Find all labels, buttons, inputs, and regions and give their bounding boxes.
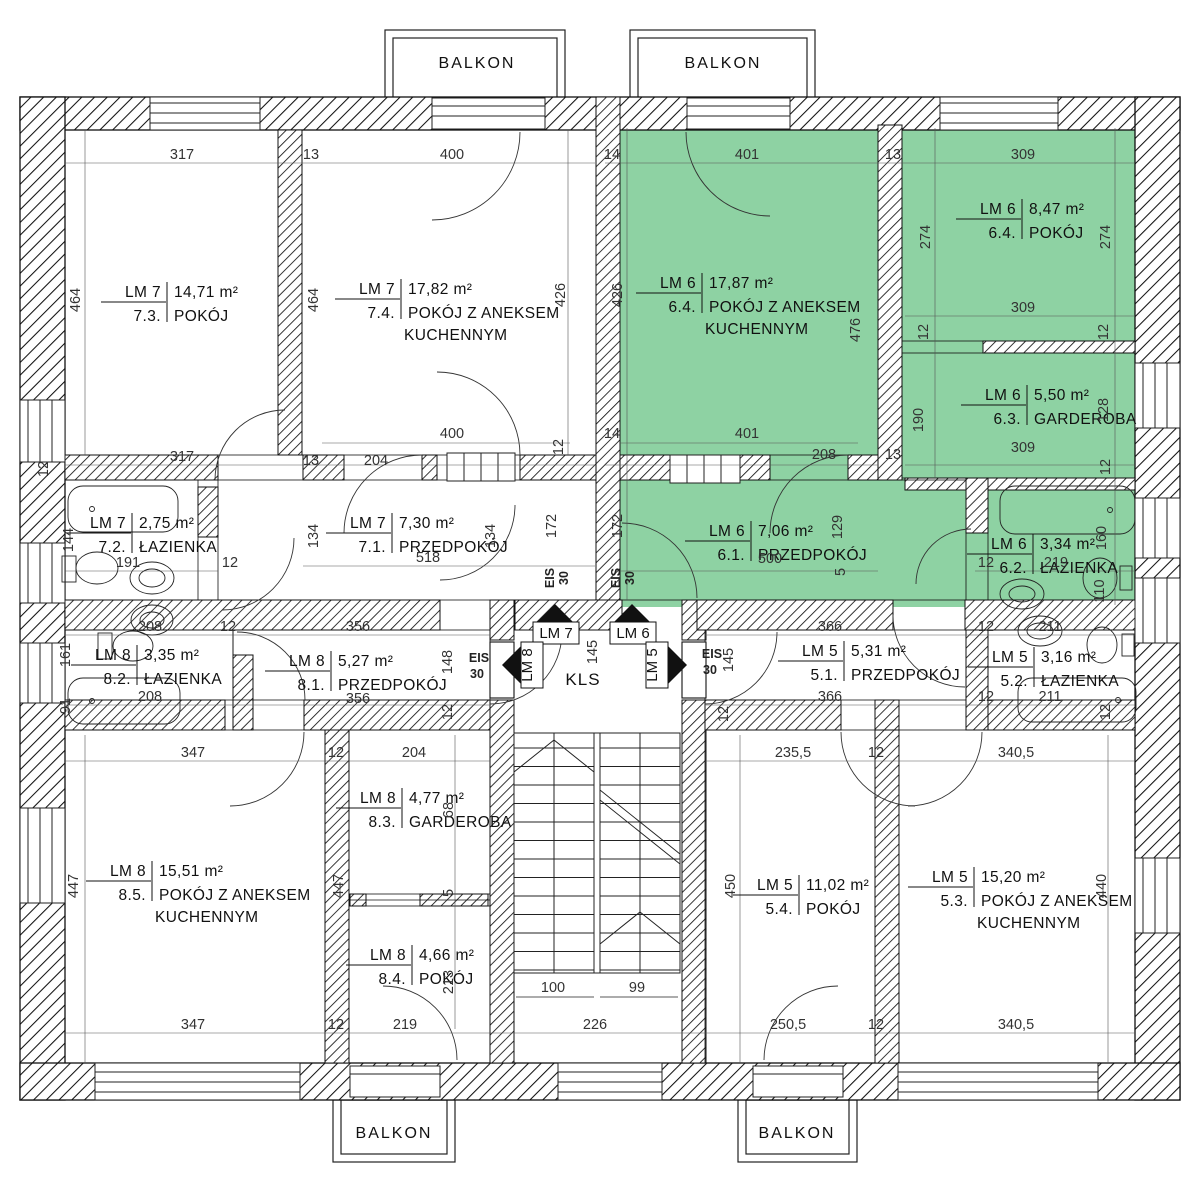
dimension-label: 12 (978, 555, 994, 571)
marker-lm5: LM 5 (644, 642, 687, 688)
room-name: POKÓJ Z ANEKSEM (159, 887, 311, 904)
dimension-label: 12 (978, 619, 994, 635)
room-area: 7,06 m² (758, 523, 813, 540)
room-name-line2: KUCHENNYM (977, 915, 1081, 932)
door-room-53 (908, 732, 982, 806)
dimension-label: 12 (551, 439, 567, 455)
room-number: 8.4. (379, 971, 406, 988)
room-number: 6.2. (1000, 560, 1027, 577)
dimension-label: 440 (1094, 874, 1110, 898)
room-label-83: LM 84,77 m²8.3.GARDEROBA (336, 788, 512, 831)
room-label-72: LM 72,75 m²7.2.ŁAZIENKA (66, 513, 217, 556)
dimension-label: 401 (735, 147, 759, 163)
room-area: 7,30 m² (399, 515, 454, 532)
dimension-label: 12 (220, 619, 236, 635)
dimension-label: 12 (868, 1017, 884, 1033)
room-area: 2,75 m² (139, 515, 194, 532)
room-label-73: LM 714,71 m²7.3.POKÓJ (101, 282, 238, 325)
dimension-label: 14 (604, 147, 620, 163)
door-room-73 (215, 410, 285, 480)
room-unit: LM 6 (985, 387, 1021, 404)
dimension-label: 476 (848, 318, 864, 342)
room-name-line2: KUCHENNYM (155, 909, 259, 926)
dimension-label: 447 (331, 874, 347, 898)
dimension-label: 340,5 (998, 745, 1034, 761)
room-number: 7.4. (368, 305, 395, 322)
room-number: 6.4. (669, 299, 696, 316)
svg-text:LM 8: LM 8 (519, 648, 536, 681)
room-unit: LM 6 (660, 275, 696, 292)
room-number: 6.3. (994, 411, 1021, 428)
apartment-lm6-highlight (602, 126, 1135, 607)
room-label-85: LM 815,51 m²8.5.POKÓJ Z ANEKSEMKUCHENNYM (86, 861, 311, 926)
dimension-label: 213 (441, 970, 457, 994)
dimension-label: 464 (306, 288, 322, 312)
room-area: 17,82 m² (408, 281, 472, 298)
dimension-label: 204 (364, 453, 388, 469)
room-area: 14,71 m² (174, 284, 238, 301)
room-label-51: LM 55,31 m²5.1.PRZEDPOKÓJ (778, 641, 960, 684)
room-number: 7.1. (359, 539, 386, 556)
dimension-label: 12 (440, 704, 456, 720)
dimension-label: 145 (585, 640, 601, 664)
svg-text:30: 30 (703, 663, 717, 677)
room-number: 8.2. (104, 671, 131, 688)
room-name-line2: KUCHENNYM (404, 327, 508, 344)
dimension-label: 12 (36, 461, 52, 477)
room-unit: LM 7 (125, 284, 161, 301)
dimension-label: 366 (818, 619, 842, 635)
svg-text:EIS: EIS (543, 568, 557, 588)
dimension-label: 518 (416, 550, 440, 566)
dimension-label: 13 (303, 453, 319, 469)
toilet-icon (62, 552, 118, 584)
dimension-label: 12 (978, 689, 994, 705)
room-name: GARDEROBA (1034, 411, 1137, 428)
svg-text:EIS: EIS (702, 647, 722, 661)
door-balcony-74 (432, 132, 520, 220)
dimension-label: 13 (885, 147, 901, 163)
dimension-label: 208 (812, 447, 836, 463)
room-unit: LM 8 (289, 653, 325, 670)
dimension-label: 12 (916, 324, 932, 340)
balcony-label: BALKON (439, 55, 516, 72)
dimension-label: 5 (833, 568, 849, 576)
room-unit: LM 6 (991, 536, 1027, 553)
dimension-label: 128 (1096, 398, 1112, 422)
room-name: PRZEDPOKÓJ (851, 667, 960, 684)
dimension-label: 14 (604, 426, 620, 442)
room-area: 15,20 m² (981, 869, 1045, 886)
dimension-label: 145 (721, 648, 737, 672)
room-unit: LM 6 (709, 523, 745, 540)
dimension-label: 447 (66, 874, 82, 898)
room-area: 15,51 m² (159, 863, 223, 880)
dimension-label: 211 (1038, 619, 1061, 635)
room-number: 5.4. (766, 901, 793, 918)
fire-door-label: EIS 30 (543, 568, 571, 588)
room-label-82: LM 83,35 m²8.2.ŁAZIENKA (71, 645, 222, 688)
room-area: 8,47 m² (1029, 201, 1084, 218)
svg-text:EIS: EIS (609, 568, 623, 588)
dimension-label: 191 (116, 555, 140, 571)
room-area: 5,50 m² (1034, 387, 1089, 404)
dimension-label: 317 (170, 449, 194, 465)
svg-text:LM 7: LM 7 (539, 625, 572, 642)
dimension-label: 204 (402, 745, 426, 761)
dimension-label: 500 (758, 551, 782, 567)
room-number: 6.4. (989, 225, 1016, 242)
dimension-label: 208 (138, 619, 162, 635)
room-unit: LM 7 (90, 515, 126, 532)
staircase-label: KLS (565, 670, 600, 689)
room-area: 3,35 m² (144, 647, 199, 664)
room-number: 5.3. (941, 893, 968, 910)
fire-door-label: EIS 30 (469, 651, 489, 681)
floor-plan-page: LM 7 LM 6 LM 8 LM 5 BALKON BALKON BALKON… (0, 0, 1200, 1200)
dimension-label: 12 (716, 706, 732, 722)
room-label-81: LM 85,27 m²8.1.PRZEDPOKÓJ (265, 651, 447, 694)
room-area: 5,31 m² (851, 643, 906, 660)
dimension-label: 464 (68, 288, 84, 312)
dimension-label: 172 (610, 514, 626, 538)
dimension-label: 356 (346, 691, 370, 707)
room-name: POKÓJ Z ANEKSEM (709, 299, 861, 316)
dimension-label: 401 (735, 426, 759, 442)
room-name: POKÓJ (806, 901, 861, 918)
dimension-label: 347 (181, 1017, 205, 1033)
room-name: GARDEROBA (409, 814, 512, 831)
door-room-85 (230, 732, 304, 806)
dimension-label: 13 (303, 147, 319, 163)
room-label-74: LM 717,82 m²7.4.POKÓJ Z ANEKSEMKUCHENNYM (335, 279, 560, 344)
room-unit: LM 5 (802, 643, 838, 660)
dimension-label: 400 (440, 147, 464, 163)
dimension-label: 274 (1098, 225, 1114, 249)
room-unit: LM 8 (360, 790, 396, 807)
dimension-label: 134 (483, 524, 499, 548)
balcony-label: BALKON (685, 55, 762, 72)
room-area: 3,16 m² (1041, 649, 1096, 666)
room-unit: LM 8 (110, 863, 146, 880)
dimension-label: 12 (222, 555, 238, 571)
svg-text:30: 30 (470, 667, 484, 681)
room-area: 17,87 m² (709, 275, 773, 292)
dimension-label: 309 (1011, 300, 1035, 316)
dimension-label: 274 (918, 225, 934, 249)
svg-text:LM 5: LM 5 (644, 648, 661, 681)
room-number: 8.3. (369, 814, 396, 831)
room-number: 7.2. (99, 539, 126, 556)
dimension-label: 68 (441, 802, 457, 818)
dimension-label: 12 (1098, 459, 1114, 475)
balcony-label: BALKON (759, 1125, 836, 1142)
dimension-label: 366 (818, 689, 842, 705)
dimension-label: 148 (440, 650, 456, 674)
dimension-label: 134 (306, 524, 322, 548)
room-area: 5,27 m² (338, 653, 393, 670)
dimension-label: 190 (911, 408, 927, 432)
room-number: 5.2. (1001, 673, 1028, 690)
dimension-label: 12 (1096, 324, 1112, 340)
staircase (514, 733, 680, 997)
dimension-label: 12 (868, 745, 884, 761)
floor-plan-drawing: LM 7 LM 6 LM 8 LM 5 BALKON BALKON BALKON… (0, 0, 1200, 1200)
dimension-label: 12 (328, 745, 344, 761)
room-name: ŁAZIENKA (144, 671, 222, 688)
room-unit: LM 6 (980, 201, 1016, 218)
dimension-label: 426 (553, 283, 569, 307)
room-number: 7.3. (134, 308, 161, 325)
room-area: 3,34 m² (1040, 536, 1095, 553)
room-label-52: LM 53,16 m²5.2.ŁAZIENKA (968, 647, 1119, 690)
dimension-label: 450 (723, 874, 739, 898)
dimension-label: 13 (885, 447, 901, 463)
dimension-label: 250,5 (770, 1017, 806, 1033)
room-label-54: LM 511,02 m²5.4.POKÓJ (733, 875, 869, 918)
room-unit: LM 5 (932, 869, 968, 886)
svg-text:LM 6: LM 6 (616, 625, 649, 642)
dimension-label: 100 (541, 980, 565, 996)
room-name: POKÓJ (174, 308, 229, 325)
room-unit: LM 5 (992, 649, 1028, 666)
room-name: POKÓJ (1029, 225, 1084, 242)
room-number: 8.1. (298, 677, 325, 694)
svg-text:30: 30 (557, 571, 571, 585)
dimension-label: 99 (629, 980, 645, 996)
dimension-label: 208 (138, 689, 162, 705)
svg-text:30: 30 (623, 571, 637, 585)
dimension-label: 110 (1092, 579, 1108, 602)
dimension-label: 309 (1011, 147, 1035, 163)
room-number: 6.1. (718, 547, 745, 564)
dimension-label: 211 (1038, 689, 1061, 705)
dimension-label: 426 (610, 283, 626, 307)
dimension-label: 400 (440, 426, 464, 442)
dimension-label: 317 (170, 147, 194, 163)
dimension-label: 160 (1094, 526, 1110, 550)
dimension-label: 235,5 (775, 745, 811, 761)
door-room-74 (437, 372, 520, 455)
dimension-label: 356 (346, 619, 370, 635)
svg-text:EIS: EIS (469, 651, 489, 665)
dimension-label: 12 (328, 1017, 344, 1033)
room-unit: LM 8 (95, 647, 131, 664)
room-name-line2: KUCHENNYM (705, 321, 809, 338)
dimension-label: 340,5 (998, 1017, 1034, 1033)
room-number: 8.5. (119, 887, 146, 904)
kitchen-annex-left (447, 453, 515, 481)
kitchen-annex-right (670, 455, 740, 483)
room-number: 5.1. (811, 667, 838, 684)
door-bath-72 (222, 538, 294, 610)
dimension-label: 129 (830, 515, 846, 539)
room-name: ŁAZIENKA (1041, 673, 1119, 690)
dimension-label: 219 (393, 1017, 417, 1033)
dimension-label: 161 (58, 643, 74, 667)
room-area: 4,66 m² (419, 947, 474, 964)
dimension-label: 12 (1098, 704, 1114, 720)
room-name: ŁAZIENKA (139, 539, 217, 556)
dimension-label: 347 (181, 745, 205, 761)
dimension-label: 226 (583, 1017, 607, 1033)
dimension-label: 144 (61, 528, 77, 552)
dimension-label: 309 (1011, 440, 1035, 456)
room-unit: LM 7 (350, 515, 386, 532)
dimension-label: 219 (1044, 555, 1068, 571)
room-unit: LM 7 (359, 281, 395, 298)
dimension-label: 91 (58, 698, 74, 714)
room-unit: LM 5 (757, 877, 793, 894)
room-unit: LM 8 (370, 947, 406, 964)
dimension-label: 172 (544, 514, 560, 538)
dimension-label: 5 (441, 889, 457, 897)
room-area: 11,02 m² (806, 877, 869, 894)
room-name: POKÓJ Z ANEKSEM (408, 305, 560, 322)
balcony-label: BALKON (356, 1125, 433, 1142)
